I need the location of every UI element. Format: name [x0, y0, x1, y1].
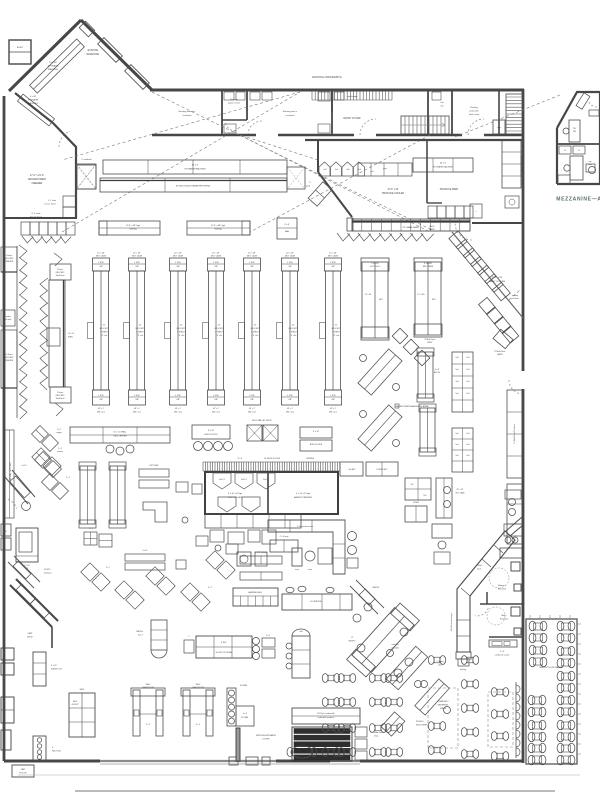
svg-text:2'8" shlv: 2'8" shlv	[290, 335, 297, 337]
svg-text:4' x 2': 4' x 2'	[146, 724, 151, 726]
svg-text:Multi Deck beverages: Multi Deck beverages	[450, 613, 453, 631]
svg-text:GROCERY: GROCERY	[55, 272, 65, 274]
svg-text:4 x 30': 4 x 30'	[30, 96, 37, 98]
svg-text:STAGE & GO: STAGE & GO	[51, 668, 63, 671]
svg-text:PASTRY: PASTRY	[372, 586, 380, 589]
svg-text:MDT CASE: MDT CASE	[285, 255, 296, 258]
svg-text:4x4: 4x4	[358, 169, 361, 171]
svg-text:coat lounge: coat lounge	[347, 95, 358, 98]
svg-text:SELF: SELF	[73, 701, 77, 703]
svg-text:sink: sink	[370, 171, 373, 173]
svg-text:mgr: mgr	[589, 161, 592, 163]
svg-text:5x4: 5x4	[456, 393, 459, 395]
svg-text:STORAGE RACKING: STORAGE RACKING	[520, 155, 523, 177]
svg-text:Mtdk: Mtdk	[285, 230, 289, 233]
svg-text:6x4 1/2: 6x4 1/2	[219, 479, 225, 481]
svg-text:4 SHELF: 4 SHELF	[215, 332, 224, 334]
svg-text:22' x 32": 22' x 32"	[457, 489, 464, 491]
svg-text:4 SHELF: 4 SHELF	[289, 332, 298, 334]
svg-text:CART: CART	[27, 632, 33, 635]
svg-text:4' END: 4' END	[175, 262, 181, 264]
svg-text:10' x 10' WALL: 10' x 10' WALL	[113, 431, 127, 434]
svg-text:ENTRY FOYER: ENTRY FOYER	[344, 117, 361, 120]
svg-text:4 Doors: 4 Doors	[6, 255, 12, 257]
svg-text:CHECKOUTS: CHECKOUTS	[192, 687, 205, 689]
svg-text:DROP: DROP	[27, 637, 33, 639]
svg-text:4 x 8': 4 x 8'	[243, 713, 248, 715]
svg-text:MDT CASE: MDT CASE	[132, 255, 143, 258]
svg-text:4 SHELF: 4 SHELF	[177, 332, 186, 334]
svg-text:BULK FOODS: BULK FOODS	[205, 434, 219, 436]
svg-text:4x4: 4x4	[335, 169, 338, 171]
svg-text:BULK: BULK	[430, 226, 436, 228]
svg-text:GROCERY: GROCERY	[135, 328, 145, 330]
svg-text:EXIST: EXIST	[17, 47, 24, 49]
svg-text:40' x 48": 40' x 48"	[212, 253, 220, 255]
svg-text:2' x 8': 2' x 8'	[500, 651, 505, 653]
svg-text:EXISTING OFFICES/MTG: EXISTING OFFICES/MTG	[312, 76, 342, 79]
svg-text:5- 2' wide: 5- 2' wide	[48, 200, 56, 202]
svg-text:18' Ref. Londonville: 18' Ref. Londonville	[317, 713, 335, 715]
svg-text:10 Doors: 10 Doors	[5, 354, 12, 356]
svg-text:40' x 48": 40' x 48"	[174, 253, 182, 255]
svg-text:5x4: 5x4	[456, 357, 459, 359]
svg-text:GROCERY: GROCERY	[4, 258, 14, 260]
svg-text:SUSHI: SUSHI	[413, 502, 419, 504]
svg-text:door: door	[438, 665, 442, 667]
svg-text:SELF: SELF	[80, 689, 86, 691]
svg-text:Deck: Deck	[477, 569, 481, 571]
svg-text:Women's: Women's	[498, 585, 506, 587]
svg-text:40' x 48": 40' x 48"	[329, 253, 337, 255]
svg-text:4' x 14' x 8' high: 4' x 14' x 8' high	[296, 493, 310, 495]
svg-text:4' END: 4' END	[134, 395, 140, 397]
svg-text:STORAGE RACKING: STORAGE RACKING	[184, 168, 206, 171]
svg-text:16' BULK FOODS: 16' BULK FOODS	[264, 458, 281, 460]
svg-text:8' Multi Deck: 8' Multi Deck	[495, 350, 506, 353]
svg-text:40' x 48": 40' x 48"	[97, 253, 105, 255]
svg-text:2'8" shlv: 2'8" shlv	[333, 335, 340, 337]
svg-text:17'-0" x 24'-0": 17'-0" x 24'-0"	[30, 175, 44, 177]
svg-text:5x4: 5x4	[456, 455, 459, 457]
svg-text:48" x 2': 48" x 2'	[98, 408, 105, 410]
svg-text:FL: FL	[5, 531, 7, 533]
svg-text:MDT CASE: MDT CASE	[96, 255, 107, 258]
svg-text:SELF: SELF	[196, 684, 202, 686]
svg-text:GROCERY: GROCERY	[176, 328, 186, 330]
svg-text:5x4: 5x4	[467, 455, 470, 457]
svg-text:4 SHELF: 4 SHELF	[332, 332, 341, 334]
svg-text:4' END: 4' END	[249, 262, 255, 264]
svg-text:16' x 14': 16' x 14'	[68, 333, 75, 335]
svg-text:CHKOUT: CHKOUT	[71, 704, 78, 706]
svg-text:2 x 8': 2 x 8'	[266, 635, 271, 637]
svg-text:Mtd Case: Mtd Case	[174, 411, 182, 414]
svg-text:MERCH: MERCH	[136, 631, 143, 633]
svg-text:5x4: 5x4	[456, 381, 459, 383]
svg-text:DOORS: DOORS	[263, 739, 271, 741]
svg-text:4' x 8': 4' x 8'	[284, 224, 290, 226]
svg-text:BULK PALLET DROP: BULK PALLET DROP	[252, 419, 272, 422]
svg-text:1'2 x 40'h: 1'2 x 40'h	[417, 294, 425, 296]
svg-text:Mtd Case: Mtd Case	[329, 411, 337, 414]
svg-text:RACKING: RACKING	[28, 102, 38, 105]
svg-text:10 x 30': 10 x 30'	[49, 62, 57, 64]
svg-text:pharmacy: pharmacy	[44, 572, 52, 575]
svg-text:BULK FOODS: BULK FOODS	[310, 444, 323, 446]
svg-text:multi-use: multi-use	[391, 643, 398, 646]
svg-text:4' END: 4' END	[213, 395, 219, 397]
svg-text:wall door: wall door	[5, 318, 12, 321]
svg-text:oven: oven	[295, 569, 299, 571]
svg-text:4 x 10': 4 x 10'	[21, 465, 27, 467]
svg-text:4' x 8' prep: 4' x 8' prep	[280, 536, 289, 538]
svg-text:PRODUCE PREP: PRODUCE PREP	[440, 189, 459, 191]
svg-text:48" x 2': 48" x 2'	[249, 408, 256, 410]
svg-text:Existing men's: Existing men's	[283, 110, 298, 113]
svg-text:strs: strs	[440, 105, 443, 108]
svg-text:GROCERY: GROCERY	[214, 328, 224, 330]
svg-text:11'-6" x 48" high: 11'-6" x 48" high	[211, 225, 225, 227]
svg-text:4' END: 4' END	[98, 395, 104, 397]
svg-text:MDT CASE: MDT CASE	[247, 255, 258, 258]
svg-text:40' x 48": 40' x 48"	[286, 253, 294, 255]
svg-text:16' SERVICE: 16' SERVICE	[310, 601, 322, 603]
svg-text:week after: week after	[469, 110, 479, 113]
svg-text:2 x 2: 2 x 2	[58, 448, 62, 450]
svg-text:condiments counter: condiments counter	[495, 654, 510, 657]
svg-text:4 SHELF: 4 SHELF	[251, 332, 260, 334]
svg-text:EXISTING: EXISTING	[88, 50, 99, 52]
svg-text:DAIRY: DAIRY	[497, 353, 503, 356]
svg-text:veggie: veggie	[56, 432, 61, 434]
svg-text:6- 2' wide: 6- 2' wide	[32, 213, 42, 215]
svg-text:40' x 48": 40' x 48"	[248, 253, 256, 255]
svg-text:5x4: 5x4	[456, 444, 459, 446]
svg-text:SPACE: SPACE	[440, 707, 447, 710]
svg-text:8 x 8': 8 x 8'	[435, 369, 440, 371]
svg-text:SHELL: SHELL	[68, 337, 73, 339]
svg-text:Existing: Existing	[470, 106, 478, 109]
svg-text:EXISTING ENTRANCE: EXISTING ENTRANCE	[256, 734, 276, 737]
svg-text:lunch room: lunch room	[469, 113, 480, 116]
svg-text:Shelf Islnd: Shelf Islnd	[56, 275, 64, 277]
svg-text:DAIRY COOLER: DAIRY COOLER	[489, 280, 506, 283]
svg-text:8' x 20': 8' x 20'	[208, 430, 215, 432]
svg-text:KIOSK &: KIOSK &	[416, 721, 424, 723]
svg-text:exit: exit	[440, 101, 444, 104]
svg-text:DELI CENTER: DELI CENTER	[113, 436, 127, 438]
svg-text:Mtd Case: Mtd Case	[286, 411, 294, 414]
svg-text:5x4: 5x4	[456, 369, 459, 371]
svg-text:OPENING: OPENING	[306, 458, 315, 460]
svg-text:DAIRY: DAIRY	[429, 228, 435, 231]
svg-text:2 Doors: 2 Doors	[57, 392, 63, 394]
svg-text:4' END: 4' END	[287, 395, 293, 397]
svg-text:2'8" shlv: 2'8" shlv	[252, 335, 259, 337]
svg-text:13'-6" x 24': 13'-6" x 24'	[387, 189, 399, 191]
svg-text:STORAGE RACKING: STORAGE RACKING	[433, 166, 454, 169]
svg-text:FLORAL: FLORAL	[240, 684, 247, 687]
svg-text:PRODUCE COOLER: PRODUCE COOLER	[382, 193, 404, 195]
svg-text:2 Doors: 2 Doors	[57, 269, 63, 271]
svg-text:restroom: restroom	[183, 114, 192, 117]
svg-text:SVC CASE: SVC CASE	[455, 492, 465, 495]
svg-text:freezer doors: freezer doors	[30, 216, 42, 219]
svg-text:4' END: 4' END	[287, 262, 293, 264]
svg-text:11'-6" x 48" high: 11'-6" x 48" high	[126, 225, 140, 227]
svg-text:4' x 2': 4' x 2'	[196, 724, 201, 726]
svg-text:2 DECK: 2 DECK	[371, 263, 379, 265]
svg-text:4 SHELF: 4 SHELF	[100, 332, 109, 334]
svg-text:5h: 5h	[578, 150, 580, 152]
svg-text:MDT CASE: MDT CASE	[211, 255, 222, 258]
svg-text:2'8" shlv: 2'8" shlv	[178, 335, 185, 337]
svg-text:COMMUNITY: COMMUNITY	[437, 701, 449, 703]
svg-text:5x4: 5x4	[467, 369, 470, 371]
svg-text:Shelf Islnd: Shelf Islnd	[56, 398, 64, 400]
svg-text:RECYCLE: RECYCLE	[52, 751, 62, 753]
svg-text:48 x 3': 48 x 3'	[192, 165, 199, 167]
svg-text:48 x 3': 48 x 3'	[440, 163, 447, 165]
svg-text:48" x 2': 48" x 2'	[287, 408, 294, 410]
svg-text:4' END: 4' END	[213, 262, 219, 264]
svg-text:2'8" shlv: 2'8" shlv	[137, 335, 144, 337]
svg-text:GROCERY/MEAT: GROCERY/MEAT	[28, 178, 47, 181]
svg-text:c: c	[476, 211, 477, 213]
svg-text:5x4: 5x4	[467, 357, 470, 359]
svg-text:HOT DOG: HOT DOG	[370, 266, 380, 268]
svg-text:Mtd Case: Mtd Case	[248, 411, 256, 414]
svg-text:11'-1" x 28': 11'-1" x 28'	[492, 277, 503, 279]
svg-text:FLORAL: FLORAL	[242, 716, 249, 719]
svg-text:4 x 7': 4 x 7'	[208, 587, 213, 589]
svg-text:4 INC.: 4 INC.	[221, 642, 227, 644]
svg-text:40' x 48": 40' x 48"	[133, 253, 141, 255]
svg-text:7 x 7': 7 x 7'	[89, 528, 94, 530]
svg-text:shelving: shelving	[214, 229, 221, 231]
svg-text:5x4: 5x4	[467, 381, 470, 383]
svg-text:GROCERY: GROCERY	[4, 357, 14, 359]
svg-text:4' END: 4' END	[98, 262, 104, 264]
svg-text:FREEZER: FREEZER	[5, 261, 14, 263]
svg-text:exit door: exit door	[512, 297, 519, 300]
svg-text:4x8: 4x8	[300, 631, 303, 633]
svg-text:48' MULTIDECK MEAT/PROTEINS: 48' MULTIDECK MEAT/PROTEINS	[176, 185, 211, 188]
svg-text:16 x 4': 16 x 4'	[138, 635, 144, 637]
svg-text:MDT CASE: MDT CASE	[328, 255, 339, 258]
svg-text:prep: prep	[383, 168, 387, 170]
svg-text:2'8" shlv: 2'8" shlv	[101, 335, 108, 337]
svg-text:MDT CASE: MDT CASE	[423, 265, 434, 268]
svg-text:4x4: 4x4	[347, 169, 350, 171]
svg-text:8' x 10': 8' x 10'	[313, 431, 320, 433]
svg-text:5' vestibule: 5' vestibule	[82, 158, 93, 161]
svg-text:BAKERY FREEZER: BAKERY FREEZER	[294, 496, 312, 499]
svg-text:2 x 2': 2 x 2'	[57, 429, 62, 431]
svg-text:BKY tbl: BKY tbl	[434, 371, 441, 374]
svg-text:4' END: 4' END	[330, 395, 336, 397]
svg-text:24' GRAB DAIRY: 24' GRAB DAIRY	[403, 226, 420, 229]
svg-text:4' END: 4' END	[249, 395, 255, 397]
svg-text:4 SHELF: 4 SHELF	[136, 332, 145, 334]
svg-text:5x4: 5x4	[467, 393, 470, 395]
svg-text:4' END: 4' END	[175, 395, 181, 397]
svg-text:6x4 1/2: 6x4 1/2	[241, 479, 247, 481]
svg-text:BKRY: BKRY	[427, 342, 433, 344]
svg-text:Mtd Case: Mtd Case	[97, 411, 105, 414]
svg-text:ending: ending	[5, 316, 10, 318]
svg-text:4x4: 4x4	[324, 169, 327, 171]
svg-text:8' x 30": 8' x 30"	[51, 665, 57, 667]
svg-text:restroom: restroom	[286, 114, 295, 117]
svg-text:8' Multi Deck: 8' Multi Deck	[425, 338, 436, 341]
svg-text:refrig: refrig	[374, 735, 378, 738]
svg-text:12 x 36: 12 x 36	[365, 294, 371, 296]
svg-text:STORAGE: STORAGE	[28, 99, 39, 102]
svg-text:GATHERING: GATHERING	[438, 704, 449, 707]
svg-text:GROCERY: GROCERY	[288, 328, 298, 330]
svg-text:48" x 2': 48" x 2'	[134, 408, 141, 410]
svg-text:2 x 7': 2 x 7'	[66, 477, 71, 479]
svg-text:5x4: 5x4	[467, 433, 470, 435]
svg-text:GROCERY: GROCERY	[99, 328, 109, 330]
svg-text:8' BKRY MDT: 8' BKRY MDT	[376, 469, 388, 471]
svg-text:4 x 16': 4 x 16'	[142, 550, 148, 552]
svg-text:5h: 5h	[564, 150, 566, 152]
svg-text:Men's: Men's	[502, 615, 507, 617]
svg-text:STORAGE: STORAGE	[48, 65, 59, 68]
svg-text:freezer boxes: freezer boxes	[45, 203, 57, 206]
svg-text:8' x 4': 8' x 4'	[238, 458, 243, 460]
svg-text:48" x 2': 48" x 2'	[330, 408, 337, 410]
svg-text:6x4 1/2: 6x4 1/2	[263, 479, 269, 481]
svg-text:janitor's room: janitor's room	[227, 102, 240, 105]
svg-text:mixer: mixer	[308, 569, 313, 571]
svg-text:MDT CASE: MDT CASE	[173, 255, 184, 258]
svg-text:BAKERY MERCHANDISING AREA: BAKERY MERCHANDISING AREA	[396, 405, 429, 408]
svg-text:PICK UP: PICK UP	[19, 773, 27, 775]
svg-text:existing: existing	[512, 294, 518, 297]
svg-text:4 x 16' racking: 4 x 16' racking	[255, 552, 267, 554]
svg-text:SELF: SELF	[146, 684, 152, 686]
svg-text:4x4 UPC PLUS BAG: 4x4 UPC PLUS BAG	[216, 651, 233, 654]
svg-text:5x4: 5x4	[467, 444, 470, 446]
svg-text:GROCERY: GROCERY	[55, 395, 65, 397]
svg-text:10 Wall Deck Produce: 10 Wall Deck Produce	[514, 423, 516, 444]
svg-text:2 x 7': 2 x 7'	[106, 567, 111, 569]
svg-text:Mtd Case: Mtd Case	[133, 411, 141, 414]
svg-text:multi deck produce: multi deck produce	[318, 716, 336, 719]
svg-text:4x8 BKY: 4x8 BKY	[349, 469, 357, 471]
svg-text:UP-UPC: UP-UPC	[44, 569, 51, 571]
svg-text:8' Multi: 8' Multi	[476, 564, 482, 567]
svg-text:4' END: 4' END	[134, 262, 140, 264]
svg-text:MEZZANINE—A: MEZZANINE—A	[556, 197, 600, 203]
svg-text:FREEZER: FREEZER	[32, 183, 43, 185]
svg-text:shelving: shelving	[129, 229, 136, 231]
svg-text:4' DAIRY: 4' DAIRY	[424, 262, 433, 265]
svg-text:2 Compartment sink: 2 Compartment sink	[297, 525, 313, 528]
svg-text:FREEZER: FREEZER	[5, 360, 14, 362]
svg-text:2'8" shlv: 2'8" shlv	[216, 335, 223, 337]
svg-text:RECEIVING: RECEIVING	[87, 54, 100, 56]
svg-text:BUTCHER: BUTCHER	[150, 465, 159, 467]
svg-text:48" x 2': 48" x 2'	[213, 408, 220, 410]
svg-text:club table: club table	[391, 647, 399, 650]
svg-text:RACKING: RACKING	[48, 68, 58, 71]
svg-text:SMOOTHIES: SMOOTHIES	[416, 725, 428, 727]
svg-text:CHECKOUTS: CHECKOUTS	[142, 687, 155, 689]
svg-text:SANDWICHES: SANDWICHES	[248, 591, 262, 594]
svg-text:Mtd Case: Mtd Case	[212, 411, 220, 414]
svg-text:GROCERY: GROCERY	[331, 328, 341, 330]
svg-text:shelving: shelving	[460, 669, 466, 671]
svg-text:GROCERY: GROCERY	[250, 328, 260, 330]
svg-text:TBL: TBL	[573, 128, 576, 130]
svg-text:5x4: 5x4	[456, 433, 459, 435]
svg-text:cheese: cheese	[57, 451, 63, 453]
svg-text:BISTRO: BISTRO	[349, 641, 356, 643]
svg-text:C sliding: C sliding	[437, 661, 444, 663]
svg-text:8' x 10' x 8' high: 8' x 10' x 8' high	[228, 493, 242, 495]
svg-text:4' END: 4' END	[330, 262, 336, 264]
svg-text:48" x 2': 48" x 2'	[175, 408, 182, 410]
